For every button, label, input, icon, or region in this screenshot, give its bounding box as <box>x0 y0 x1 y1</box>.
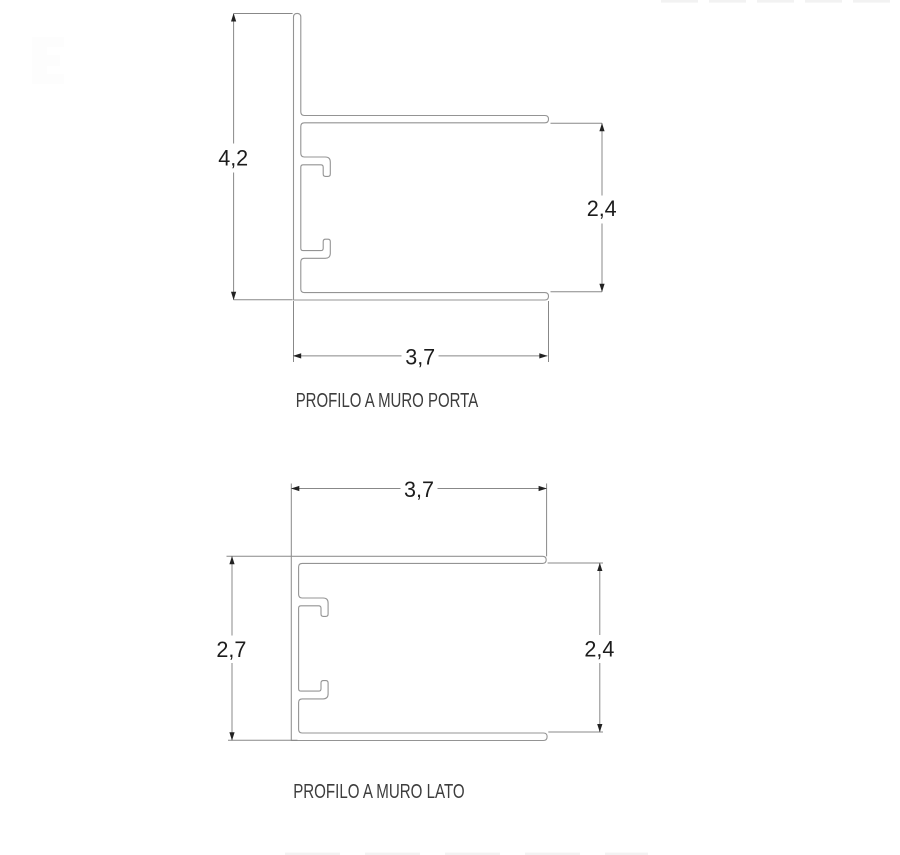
svg-text:3,7: 3,7 <box>404 477 434 502</box>
svg-text:3,7: 3,7 <box>405 345 435 370</box>
svg-text:2,4: 2,4 <box>587 196 617 221</box>
svg-text:PROFILO A MURO PORTA: PROFILO A MURO PORTA <box>296 390 479 412</box>
svg-text:2,4: 2,4 <box>584 637 614 662</box>
svg-text:4,2: 4,2 <box>218 145 248 170</box>
svg-text:2,7: 2,7 <box>216 637 246 662</box>
svg-text:PROFILO A MURO LATO: PROFILO A MURO LATO <box>293 781 465 803</box>
